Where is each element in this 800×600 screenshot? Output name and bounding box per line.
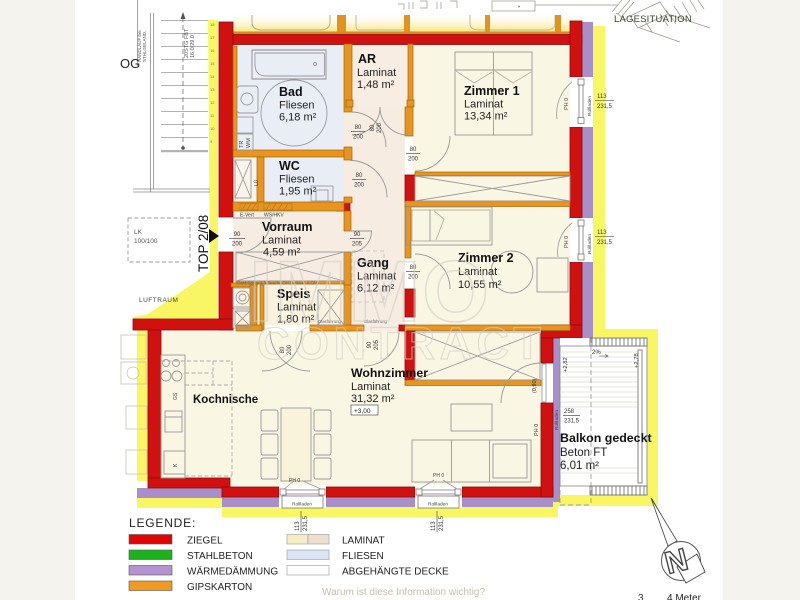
svg-text:GIPSKARTON: GIPSKARTON [187,582,252,593]
svg-text:FLIESEN: FLIESEN [342,551,384,562]
svg-text:Zimmer 1: Zimmer 1 [464,84,520,98]
svg-text:PH 0: PH 0 [564,98,570,110]
svg-text:LUFTRAUM: LUFTRAUM [139,297,178,304]
svg-text:Laminat: Laminat [464,99,503,111]
svg-text:Laminat: Laminat [351,381,390,393]
svg-text:CONTRACT: CONTRACT [257,318,545,369]
svg-text:AR: AR [358,52,376,66]
svg-text:18: 18 [210,22,215,27]
svg-text:231,5: 231,5 [597,240,613,246]
svg-text:+2,78: +2,78 [634,353,640,368]
svg-text:15: 15 [210,61,215,66]
svg-text:200: 200 [232,242,243,248]
svg-text:113: 113 [295,521,301,531]
svg-text:1,95 m²: 1,95 m² [279,186,317,198]
svg-text:Laminat: Laminat [357,67,396,79]
svg-text:80: 80 [370,124,376,131]
svg-text:Vorraum: Vorraum [262,220,312,234]
svg-text:2%: 2% [592,350,601,356]
svg-text:WÄRMEDÄMMUNG: WÄRMEDÄMMUNG [187,566,278,578]
svg-text:WM: WM [246,138,252,148]
svg-text:Warum ist diese Information wi: Warum ist diese Information wichtig? [322,587,485,598]
svg-text:LK: LK [134,229,143,236]
svg-text:Rollladen: Rollladen [587,96,593,116]
svg-text:STHLGELAND.: STHLGELAND. [142,31,147,62]
svg-text:90: 90 [234,232,241,238]
svg-text:6,01 m²: 6,01 m² [560,460,599,472]
svg-text:80: 80 [356,173,363,179]
svg-text:231,5: 231,5 [439,515,445,531]
svg-text:PH 0: PH 0 [534,424,540,436]
svg-text:12: 12 [210,100,215,105]
svg-text:Rollladen: Rollladen [554,410,560,430]
svg-text:Balkon gedeckt: Balkon gedeckt [560,431,652,445]
svg-text:10: 10 [210,126,215,131]
svg-text:Rollladen: Rollladen [428,502,448,508]
svg-text:200: 200 [408,157,419,163]
svg-text:6,18 m²: 6,18 m² [279,112,317,124]
svg-text:Fliesen: Fliesen [279,174,314,186]
svg-text:113: 113 [597,94,607,100]
svg-text:13,34 m²: 13,34 m² [464,111,508,123]
svg-text:14: 14 [210,74,215,79]
svg-text:Kochnische: Kochnische [193,394,258,406]
svg-text:16: 16 [210,48,215,53]
svg-text:4 Meter: 4 Meter [667,593,702,600]
svg-text:STAHLBETON: STAHLBETON [187,551,253,562]
svg-text:200: 200 [353,135,364,141]
svg-text:231,5: 231,5 [303,515,309,531]
svg-text:231,5: 231,5 [564,419,580,425]
svg-text:Beton FT: Beton FT [560,447,607,459]
svg-text:231,5: 231,5 [597,104,613,110]
svg-text:LAMINAT: LAMINAT [342,536,385,547]
svg-text:OG: OG [120,56,140,71]
svg-text:TOP 2/08: TOP 2/08 [196,215,211,272]
svg-text:113: 113 [431,521,437,531]
svg-text:200: 200 [377,122,383,133]
svg-text:PH 0: PH 0 [564,236,570,248]
svg-text:3: 3 [638,593,644,600]
svg-text:80: 80 [355,125,362,131]
svg-text:LEGENDE:: LEGENDE: [129,516,196,530]
svg-text:TR: TR [239,141,245,148]
svg-text:Rollladen: Rollladen [587,234,593,254]
svg-text:16.0/29.0: 16.0/29.0 [190,35,196,58]
svg-text:100/100: 100/100 [134,238,158,245]
svg-text:31,32 m²: 31,32 m² [351,393,395,405]
svg-text:17: 17 [210,35,215,40]
svg-text:Fliesen: Fliesen [279,100,314,112]
svg-text:80: 80 [410,147,417,153]
svg-text:ABGEHÄNGTE DECKE: ABGEHÄNGTE DECKE [342,566,449,578]
svg-text:(0,90): (0,90) [532,378,538,393]
svg-text:Rollladen: Rollladen [292,502,312,508]
svg-text:258: 258 [564,409,575,415]
svg-text:LÜ: LÜ [253,179,260,186]
svg-text:ZIEGEL: ZIEGEL [187,536,223,547]
svg-text:200: 200 [354,183,365,189]
svg-text:Bad: Bad [279,85,303,99]
svg-text:+2,82: +2,82 [563,357,569,372]
svg-text:13: 13 [210,87,215,92]
svg-text:90: 90 [354,232,361,238]
svg-text:WC: WC [279,159,300,173]
svg-text:LAGESITUATION: LAGESITUATION [614,14,692,25]
svg-text:+3,00: +3,00 [354,408,371,415]
svg-text:PH 0: PH 0 [289,478,300,484]
svg-text:113: 113 [597,230,607,236]
svg-text:GS: GS [173,392,179,400]
svg-text:PH 0: PH 0 [433,473,444,479]
svg-text:1,48 m²: 1,48 m² [357,79,395,91]
